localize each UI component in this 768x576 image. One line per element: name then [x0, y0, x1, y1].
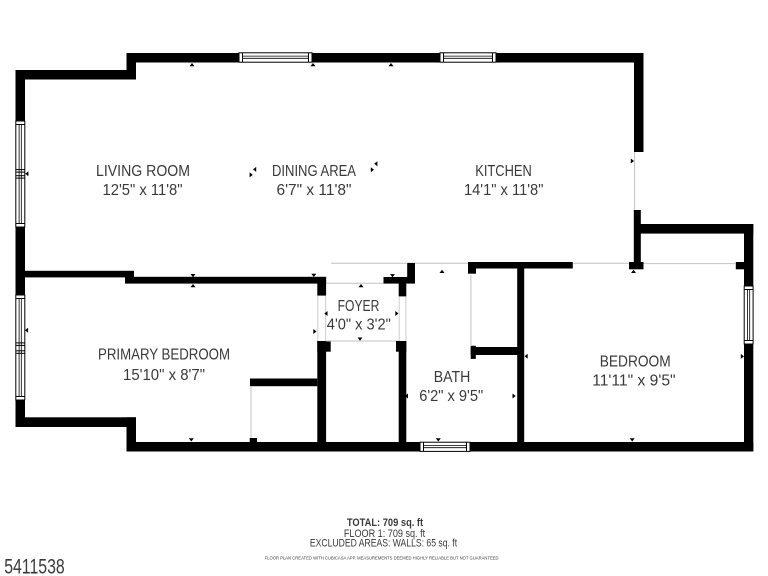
svg-text:5411538: 5411538	[4, 554, 65, 576]
svg-text:4'0" x 3'2": 4'0" x 3'2"	[327, 317, 391, 334]
svg-text:FOYER: FOYER	[338, 298, 380, 315]
svg-text:6'7" x 11'8": 6'7" x 11'8"	[277, 182, 352, 199]
svg-text:LIVING ROOM: LIVING ROOM	[96, 163, 190, 180]
svg-text:BATH: BATH	[434, 369, 471, 386]
svg-text:PRIMARY BEDROOM: PRIMARY BEDROOM	[98, 347, 230, 364]
svg-text:6'2" x 9'5": 6'2" x 9'5"	[419, 388, 483, 405]
svg-text:14'1" x 11'8": 14'1" x 11'8"	[464, 182, 544, 199]
svg-text:BEDROOM: BEDROOM	[600, 353, 671, 370]
svg-text:EXCLUDED AREAS: WALLS: 65 sq.: EXCLUDED AREAS: WALLS: 65 sq. ft	[310, 538, 457, 550]
svg-text:KITCHEN: KITCHEN	[475, 163, 532, 180]
svg-text:DINING AREA: DINING AREA	[272, 163, 356, 180]
svg-text:FLOOR PLAN CREATED WITH CUBICA: FLOOR PLAN CREATED WITH CUBICASA APP. ME…	[265, 556, 500, 561]
svg-text:11'11" x 9'5": 11'11" x 9'5"	[592, 373, 675, 390]
svg-text:15'10" x 8'7": 15'10" x 8'7"	[123, 367, 205, 384]
svg-text:TOTAL: 709 sq. ft: TOTAL: 709 sq. ft	[347, 517, 424, 529]
svg-text:12'5" x 11'8": 12'5" x 11'8"	[103, 182, 183, 199]
